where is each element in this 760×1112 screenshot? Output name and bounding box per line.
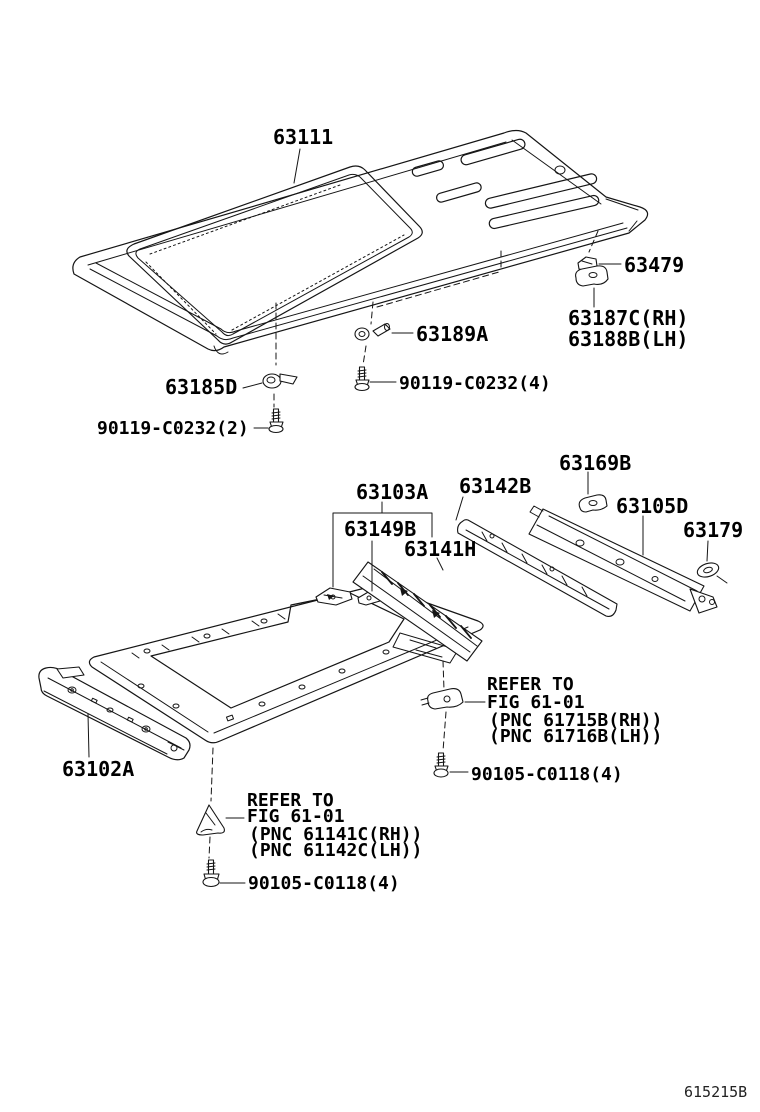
label-90105-c0118-front: 90105-C0118(4) [248,873,400,894]
label-63103a: 63103A [356,480,428,504]
clip-63185d-part [263,374,297,388]
clip-63169b-part [579,495,607,512]
note-front-refer: REFER TO FIG 61-01 (PNC 61141C(RH)) (PNC… [247,790,422,861]
label-63479: 63479 [624,253,684,277]
label-90105-c0118-rear: 90105-C0118(4) [471,764,623,785]
parts-diagram: 63111 63479 63187C(RH) 63188B(LH) 63189A… [0,0,760,1112]
roof-bracket-63187-part [576,266,608,286]
label-63102a: 63102A [62,757,134,781]
label-63188b-lh: 63188B(LH) [568,327,688,351]
note-rear-refer: REFER TO FIG 61-01 (PNC 61715B(RH)) (PNC… [487,674,662,747]
label-63179: 63179 [683,518,743,542]
rear-roof-side-bracket-part [421,689,463,709]
roof-panel-63111-drawing [73,131,648,355]
bolt-icon [434,753,448,777]
label-63169b: 63169B [559,451,631,475]
hinge-63189a-part [355,324,390,341]
bolt-icon [269,409,283,433]
parts-figure-page: 63111 63479 63187C(RH) 63188B(LH) 63189A… [0,0,760,1112]
label-63142b: 63142B [459,474,531,498]
grommet-63179-part [696,560,727,583]
front-pillar-bracket-part [197,805,225,835]
label-63105d: 63105D [616,494,688,518]
label-63141h: 63141H [404,537,476,561]
label-63189a: 63189A [416,322,488,346]
label-90119-c0232-4: 90119-C0232(4) [399,373,551,394]
label-63185d: 63185D [165,375,237,399]
label-63111: 63111 [273,125,333,149]
bolt-icon [203,860,219,887]
figure-code: 615215B [684,1083,747,1101]
label-90119-c0232-2: 90119-C0232(2) [97,418,249,439]
bolt-icon [355,367,369,391]
note-front-line4: (PNC 61142C(LH)) [249,840,422,861]
note-rear-line4: (PNC 61716B(LH)) [489,726,662,747]
